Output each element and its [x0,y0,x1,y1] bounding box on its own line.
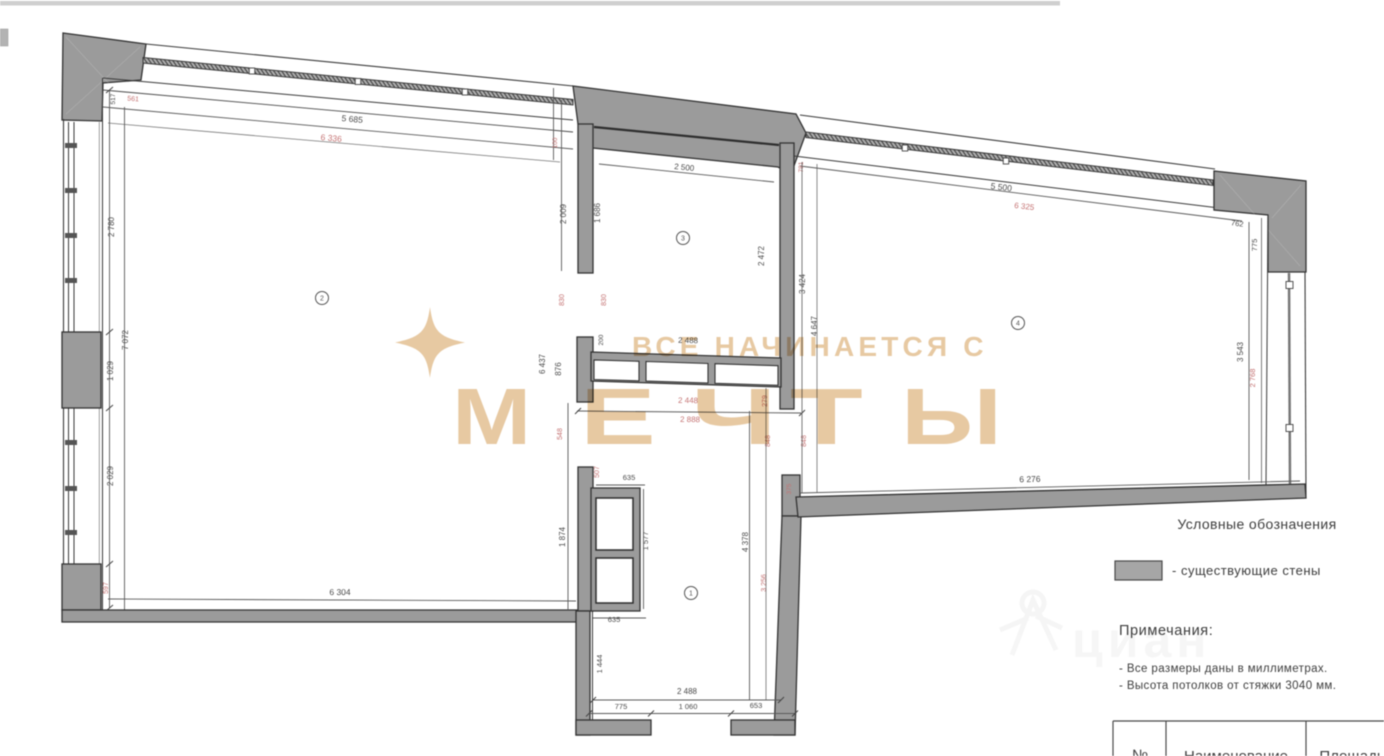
svg-text:2 009: 2 009 [559,203,568,224]
svg-text:3 256: 3 256 [761,574,768,592]
svg-text:517: 517 [110,93,117,104]
svg-text:6 276: 6 276 [1019,474,1041,485]
svg-text:1 029: 1 029 [106,360,115,381]
svg-text:Условные обозначения: Условные обозначения [1177,516,1336,532]
svg-text:Наименование: Наименование [1184,748,1288,756]
svg-text:653: 653 [750,701,763,710]
svg-text:Т: Т [790,371,863,461]
svg-text:№: № [1132,747,1148,756]
svg-text:4: 4 [1016,321,1020,328]
svg-text:1 686: 1 686 [593,202,602,223]
svg-text:Е: Е [580,372,656,462]
svg-text:1 060: 1 060 [679,702,698,711]
svg-text:2: 2 [320,296,324,303]
svg-text:1 444: 1 444 [595,655,604,674]
svg-text:1 577: 1 577 [641,532,650,551]
svg-text:Примечания:: Примечания: [1119,623,1213,639]
svg-text:200: 200 [598,334,605,345]
svg-text:3 424: 3 424 [798,273,807,294]
svg-text:- существующие стены: - существующие стены [1172,563,1321,578]
svg-text:Ч: Ч [691,371,777,461]
svg-text:597: 597 [103,582,110,594]
svg-text:4 378: 4 378 [741,531,750,552]
svg-text:7 072: 7 072 [121,329,130,350]
svg-text:Площадь: Площадь [1319,748,1384,756]
svg-text:3: 3 [681,236,685,243]
svg-text:3 543: 3 543 [1236,341,1245,362]
svg-text:1: 1 [689,591,693,598]
svg-text:100: 100 [552,137,559,148]
svg-text:775: 775 [615,702,628,711]
svg-text:781: 781 [798,161,805,172]
svg-text:5 685: 5 685 [341,113,363,125]
svg-text:561: 561 [127,96,139,104]
svg-text:ВСЕ НАЧИНАЕТСЯ С: ВСЕ НАЧИНАЕТСЯ С [632,331,988,362]
svg-text:6 437: 6 437 [538,353,547,374]
svg-text:548: 548 [557,428,564,440]
svg-text:Ы: Ы [901,371,1002,461]
svg-text:635: 635 [608,615,621,624]
svg-text:М: М [452,371,531,461]
svg-text:2 029: 2 029 [106,465,115,486]
svg-text:циан: циан [1072,612,1211,668]
svg-text:- Все размеры даны в миллиметр: - Все размеры даны в миллиметрах. [1119,663,1328,675]
svg-text:775: 775 [1250,239,1259,252]
svg-text:2 780: 2 780 [107,216,116,237]
svg-text:830: 830 [559,294,566,306]
svg-text:2 472: 2 472 [757,245,766,266]
svg-text:635: 635 [623,473,636,482]
svg-text:1 874: 1 874 [558,526,567,547]
svg-text:762: 762 [1231,218,1245,229]
svg-text:2 768: 2 768 [1248,369,1257,388]
svg-text:6 336: 6 336 [320,132,342,144]
svg-text:- Высота потолков от стяжки 30: - Высота потолков от стяжки 3040 мм. [1119,680,1336,692]
svg-text:876: 876 [554,362,563,376]
svg-text:6 304: 6 304 [329,587,351,597]
svg-text:2 488: 2 488 [677,687,698,696]
svg-text:375: 375 [786,483,793,494]
svg-text:830: 830 [601,294,608,306]
svg-text:507: 507 [594,466,601,478]
